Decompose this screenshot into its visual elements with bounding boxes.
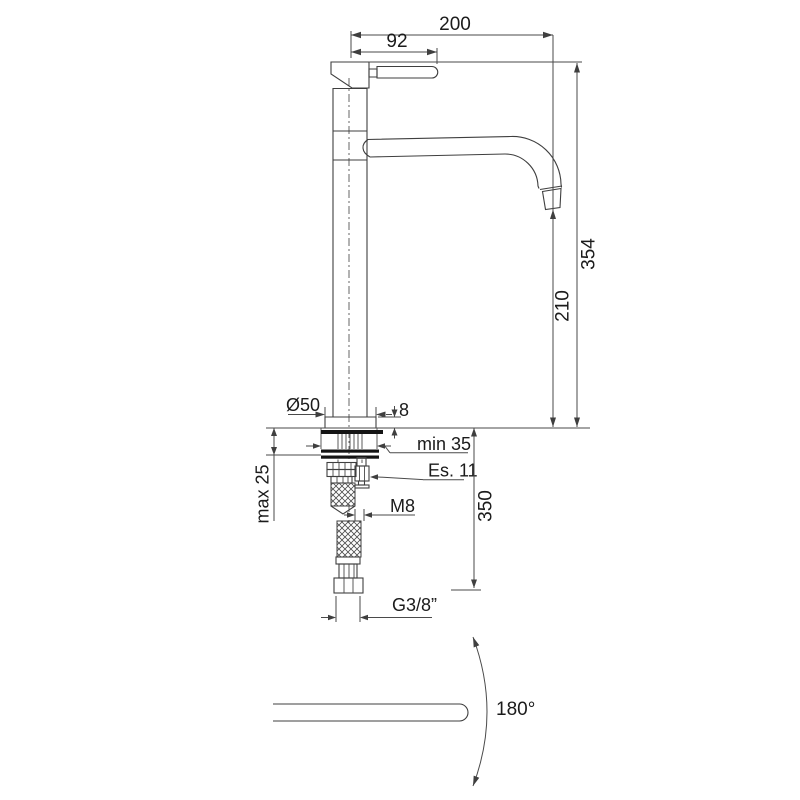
dim-spout-reach: 200 (351, 14, 553, 58)
dim-label-hex-key: Es. 11 (428, 461, 478, 481)
hose-coupling (327, 463, 356, 484)
dim-total-height: 354 (369, 62, 600, 427)
lever-handle (377, 67, 438, 79)
mixer-head (331, 62, 369, 88)
dim-label-total-height: 354 (579, 238, 600, 270)
swivel-arc-arrow-top (473, 637, 479, 648)
dim-handle-length: 92 (351, 31, 437, 64)
spout-plan-outline (273, 704, 460, 721)
hose-collar (336, 557, 360, 564)
faucet-top-view: 180° (273, 637, 535, 786)
dim-label-deck-thickness: max 25 (252, 464, 272, 523)
dim-label-base-diameter: Ø50 (286, 395, 320, 415)
swivel-arc (473, 637, 487, 786)
dim-label-hose-length: 350 (476, 490, 497, 522)
spout-inner-edge (370, 154, 539, 189)
upper-gasket (321, 430, 383, 434)
base-plate (325, 417, 376, 428)
hose-break-mark (331, 506, 355, 514)
dim-label-spout-height: 210 (553, 290, 574, 322)
handle-stub (369, 69, 377, 77)
dim-label-handle-length: 92 (386, 31, 407, 52)
hose-crimp-ribs (344, 564, 354, 578)
braided-hose-lower (337, 521, 361, 557)
dim-label-spout-reach: 200 (439, 14, 471, 35)
dim-spout-height: 210 (550, 35, 574, 427)
aerator-tip (543, 189, 562, 210)
lower-gasket-2 (321, 456, 379, 459)
dim-label-base-plate-height: 8 (399, 400, 409, 420)
dimension-annotations: 200 92 354 210 Ø50 (252, 14, 599, 622)
dim-deck-thickness: max 25 (252, 428, 277, 524)
swivel-arc-arrow-bottom (473, 776, 479, 786)
dim-label-stud-thread: M8 (390, 496, 415, 516)
spout-plan-rounded-end (460, 704, 469, 721)
dim-label-mounting-hole: min 35 (417, 434, 471, 454)
hose-nut (334, 578, 363, 593)
dim-label-swivel-angle: 180° (496, 699, 535, 720)
dim-hose-thread: G3/8” (321, 595, 437, 622)
hose-nut-facets (344, 578, 353, 593)
lower-gasket-1 (321, 450, 379, 453)
dim-hex-key: Es. 11 (370, 461, 478, 481)
dim-base-diameter: Ø50 (286, 395, 392, 418)
faucet-dimension-drawing: 200 92 354 210 Ø50 (0, 0, 800, 800)
body-column (333, 88, 367, 417)
spout-outer-edge (367, 136, 562, 187)
braided-hose-upper (331, 483, 355, 506)
dim-label-hose-thread: G3/8” (392, 595, 437, 615)
technical-drawing-page: 200 92 354 210 Ø50 (0, 0, 800, 800)
